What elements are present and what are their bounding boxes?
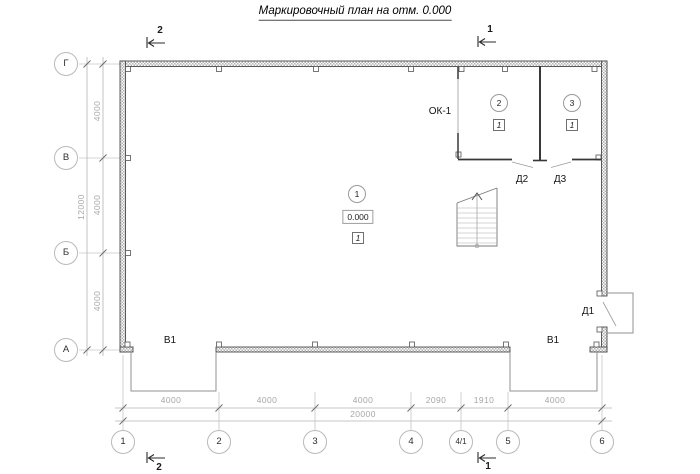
- dim-left-total: 12000: [77, 194, 86, 220]
- dim-left-seg-3: 4000: [93, 291, 102, 312]
- door-d1-label: Д1: [582, 307, 594, 317]
- axis-col-5: 5: [496, 430, 520, 454]
- dim-bottom-seg-6: 4000: [545, 396, 566, 405]
- dim-bottom-total: 20000: [350, 410, 376, 419]
- section-1-top-arrow: [478, 36, 496, 47]
- gate-v1-right-label: В1: [547, 336, 559, 346]
- floor-plan-sheet: Маркировочный план на отм. 0.000 Г В Б А…: [0, 0, 700, 474]
- section-2-top-arrow: [147, 37, 165, 48]
- room-2-floor-type: 1: [493, 119, 505, 131]
- axis-col-6: 6: [590, 430, 614, 454]
- axis-leader-lines: [79, 64, 602, 431]
- room-1-elevation: 0.000: [342, 210, 373, 224]
- dim-bottom-seg-2: 4000: [257, 396, 278, 405]
- door-leaves: [512, 162, 616, 326]
- axis-col-3: 3: [303, 430, 327, 454]
- dim-bottom-seg-5: 1910: [474, 396, 495, 405]
- dim-bottom-seg-4: 2090: [426, 396, 447, 405]
- room-2-number: 2: [490, 94, 508, 112]
- axis-col-2: 2: [207, 430, 231, 454]
- floor-plan-drawing: [0, 0, 700, 474]
- section-1-bottom-label: 1: [485, 462, 491, 472]
- exterior-walls: [120, 61, 607, 352]
- dimension-lines: [87, 57, 612, 421]
- axis-row-a: А: [54, 338, 78, 362]
- dim-bottom-seg-3: 4000: [353, 396, 374, 405]
- axis-col-4: 4: [399, 430, 423, 454]
- axis-row-v: В: [54, 146, 78, 170]
- column-marks: [125, 67, 602, 348]
- gate-ramps: [131, 352, 597, 391]
- door-d2-label: Д2: [516, 175, 528, 185]
- porch-d1: [607, 293, 633, 333]
- dim-left-seg-1: 4000: [93, 101, 102, 122]
- axis-col-1: 1: [111, 430, 135, 454]
- gate-v1-left-label: В1: [164, 336, 176, 346]
- section-2-top-label: 2: [157, 26, 163, 36]
- staircase: [457, 188, 497, 248]
- room-3-floor-type: 1: [566, 119, 578, 131]
- interior-walls: [458, 66, 601, 161]
- axis-row-b: Б: [54, 241, 78, 265]
- dimension-ticks: [84, 61, 606, 425]
- window-ok1-label: ОК-1: [429, 107, 452, 117]
- room-1-number: 1: [348, 185, 366, 203]
- gate-right-ramp: [510, 352, 597, 391]
- page-title: Маркировочный план на отм. 0.000: [259, 6, 452, 21]
- axis-col-4-1: 4/1: [449, 430, 473, 454]
- door-d2-leaf: [512, 162, 533, 168]
- dim-bottom-seg-1: 4000: [161, 396, 182, 405]
- dim-left-seg-2: 4000: [93, 195, 102, 216]
- section-1-top-label: 1: [487, 25, 493, 35]
- door-d1-leaf: [603, 302, 616, 326]
- axis-row-g: Г: [54, 52, 78, 76]
- room-1-floor-type: 1: [352, 232, 364, 244]
- door-d3-leaf: [551, 162, 571, 168]
- room-3-number: 3: [563, 94, 581, 112]
- section-2-bottom-label: 2: [156, 463, 162, 473]
- door-d3-label: Д3: [554, 175, 566, 185]
- gate-left-ramp: [131, 352, 216, 391]
